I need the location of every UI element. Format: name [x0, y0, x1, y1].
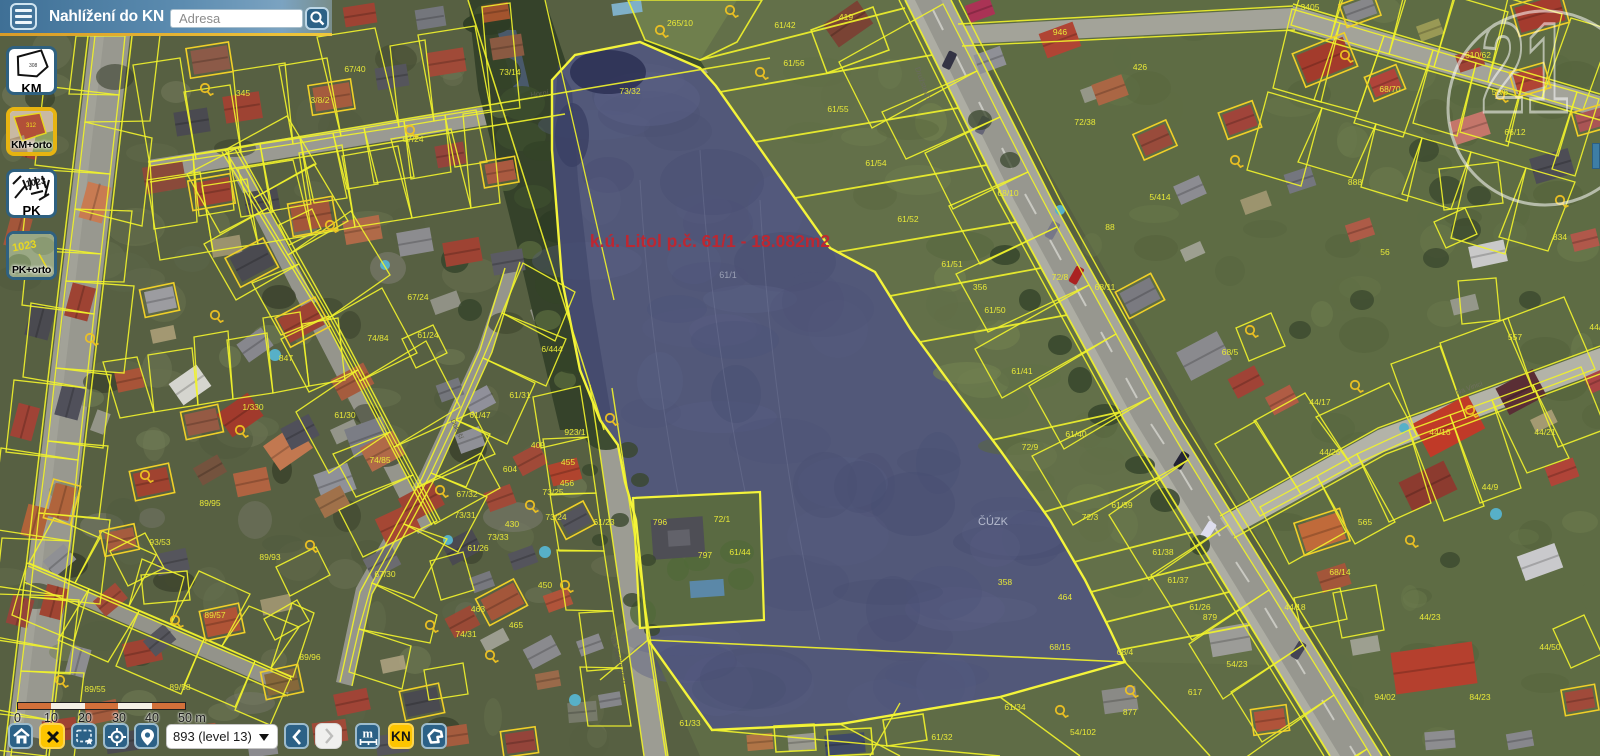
svg-text:72/9: 72/9	[1022, 442, 1039, 452]
svg-text:430: 430	[505, 519, 519, 529]
svg-text:61/37: 61/37	[1167, 575, 1189, 585]
svg-text:61/33: 61/33	[679, 718, 701, 728]
svg-text:44/18: 44/18	[1284, 602, 1306, 612]
svg-text:44/41: 44/41	[1589, 322, 1600, 332]
svg-text:44/9: 44/9	[1482, 482, 1499, 492]
svg-text:61/54: 61/54	[865, 158, 887, 168]
svg-text:44/50: 44/50	[1539, 642, 1561, 652]
svg-text:88: 88	[1105, 222, 1115, 232]
svg-text:73/24: 73/24	[545, 512, 567, 522]
svg-text:61/31: 61/31	[509, 390, 531, 400]
svg-text:72/38: 72/38	[1074, 117, 1096, 127]
svg-text:61/47: 61/47	[469, 410, 491, 420]
svg-text:61/55: 61/55	[827, 104, 849, 114]
svg-text:89/95: 89/95	[199, 498, 221, 508]
svg-text:44/21: 44/21	[1534, 427, 1556, 437]
svg-text:797: 797	[698, 550, 712, 560]
svg-text:k.ú. Litol p.č. 61/1 - 18.082m: k.ú. Litol p.č. 61/1 - 18.082m2	[590, 231, 831, 251]
svg-text:61/30: 61/30	[334, 410, 356, 420]
svg-text:61/23: 61/23	[593, 517, 615, 527]
svg-text:5/414: 5/414	[1149, 192, 1171, 202]
svg-text:923/1: 923/1	[564, 427, 586, 437]
svg-text:345: 345	[236, 88, 250, 98]
svg-text:ČÚZK: ČÚZK	[978, 515, 1009, 528]
svg-text:61/42: 61/42	[774, 20, 796, 30]
svg-text:67/24: 67/24	[402, 134, 424, 144]
svg-text:54/102: 54/102	[1070, 727, 1096, 737]
svg-text:879: 879	[1203, 612, 1217, 622]
svg-text:617: 617	[1188, 687, 1202, 697]
svg-text:61/34: 61/34	[1004, 702, 1026, 712]
svg-text:426: 426	[1133, 62, 1147, 72]
svg-text:54/23: 54/23	[1226, 659, 1248, 669]
svg-text:61/50: 61/50	[984, 305, 1006, 315]
svg-text:67/24: 67/24	[407, 292, 429, 302]
svg-text:68/10: 68/10	[997, 188, 1019, 198]
svg-text:89/55: 89/55	[84, 684, 106, 694]
svg-text:61/24: 61/24	[417, 330, 439, 340]
svg-text:68/5: 68/5	[1222, 347, 1239, 357]
svg-text:61/56: 61/56	[783, 58, 805, 68]
svg-text:68/14: 68/14	[1329, 567, 1351, 577]
svg-text:89/96: 89/96	[299, 652, 321, 662]
svg-text:6/444: 6/444	[541, 344, 563, 354]
svg-text:464: 464	[1058, 592, 1072, 602]
svg-text:61/1: 61/1	[719, 270, 737, 280]
svg-text:61/41: 61/41	[1011, 366, 1033, 376]
svg-text:89/58: 89/58	[169, 682, 191, 692]
svg-text:89/93: 89/93	[259, 552, 281, 562]
svg-text:888: 888	[1348, 177, 1362, 187]
svg-text:409: 409	[531, 440, 545, 450]
svg-text:89/57: 89/57	[204, 610, 226, 620]
svg-text:44/26: 44/26	[1319, 447, 1341, 457]
svg-text:68/11: 68/11	[1095, 282, 1116, 292]
svg-text:419: 419	[839, 12, 853, 22]
svg-text:604: 604	[503, 464, 517, 474]
svg-text:61/39: 61/39	[1111, 500, 1133, 510]
svg-text:44/17: 44/17	[1309, 397, 1331, 407]
svg-text:68/4: 68/4	[1117, 647, 1134, 657]
svg-text:68/70: 68/70	[1379, 84, 1401, 94]
svg-text:74/85: 74/85	[369, 455, 391, 465]
svg-text:74/31: 74/31	[455, 629, 477, 639]
svg-text:1023: 1023	[25, 175, 46, 188]
svg-text:72/1: 72/1	[714, 514, 731, 524]
svg-text:44/23: 44/23	[1419, 612, 1441, 622]
svg-text:463: 463	[471, 604, 485, 614]
svg-text:946: 946	[1053, 27, 1067, 37]
svg-text:61/51: 61/51	[941, 259, 963, 269]
svg-text:61/38: 61/38	[1152, 547, 1174, 557]
svg-text:93/53: 93/53	[149, 537, 171, 547]
svg-text:265/10: 265/10	[667, 18, 693, 28]
svg-text:67/30: 67/30	[374, 569, 396, 579]
svg-text:61/32: 61/32	[931, 732, 953, 742]
svg-text:796: 796	[653, 517, 667, 527]
svg-text:61/40: 61/40	[1065, 429, 1087, 439]
svg-text:84/23: 84/23	[1469, 692, 1491, 702]
svg-text:3/8/2: 3/8/2	[311, 95, 330, 105]
svg-text:72/3: 72/3	[1082, 512, 1099, 522]
svg-text:557: 557	[1508, 332, 1522, 342]
svg-text:61/52: 61/52	[897, 214, 919, 224]
svg-text:834: 834	[1553, 232, 1567, 242]
svg-text:308: 308	[29, 63, 38, 69]
svg-text:3405: 3405	[1301, 2, 1320, 12]
svg-text:61/26: 61/26	[467, 543, 489, 553]
svg-text:74/84: 74/84	[367, 333, 389, 343]
svg-text:312: 312	[26, 123, 37, 129]
svg-text:877: 877	[1123, 707, 1137, 717]
svg-text:456: 456	[560, 478, 574, 488]
svg-text:21: 21	[1481, 0, 1569, 140]
svg-text:73/32: 73/32	[619, 86, 641, 96]
svg-text:44/16: 44/16	[1429, 427, 1451, 437]
svg-text:1/330: 1/330	[242, 402, 264, 412]
svg-text:73/25: 73/25	[542, 487, 564, 497]
svg-text:455: 455	[561, 457, 575, 467]
svg-text:94/02: 94/02	[1374, 692, 1396, 702]
svg-text:358: 358	[998, 577, 1012, 587]
svg-text:61/44: 61/44	[729, 547, 751, 557]
svg-text:68/15: 68/15	[1049, 642, 1071, 652]
svg-text:72/8: 72/8	[1052, 272, 1069, 282]
svg-text:67/40: 67/40	[344, 64, 366, 74]
svg-text:356: 356	[973, 282, 987, 292]
svg-text:61/26: 61/26	[1189, 602, 1211, 612]
svg-text:465: 465	[509, 620, 523, 630]
svg-text:565: 565	[1358, 517, 1372, 527]
svg-text:450: 450	[538, 580, 552, 590]
svg-text:67/32: 67/32	[456, 489, 478, 499]
svg-text:m: m	[363, 727, 374, 741]
svg-text:73/31: 73/31	[454, 510, 476, 520]
svg-text:56: 56	[1380, 247, 1390, 257]
svg-text:73/14: 73/14	[499, 67, 521, 77]
svg-text:847: 847	[279, 353, 293, 363]
svg-text:73/33: 73/33	[487, 532, 509, 542]
